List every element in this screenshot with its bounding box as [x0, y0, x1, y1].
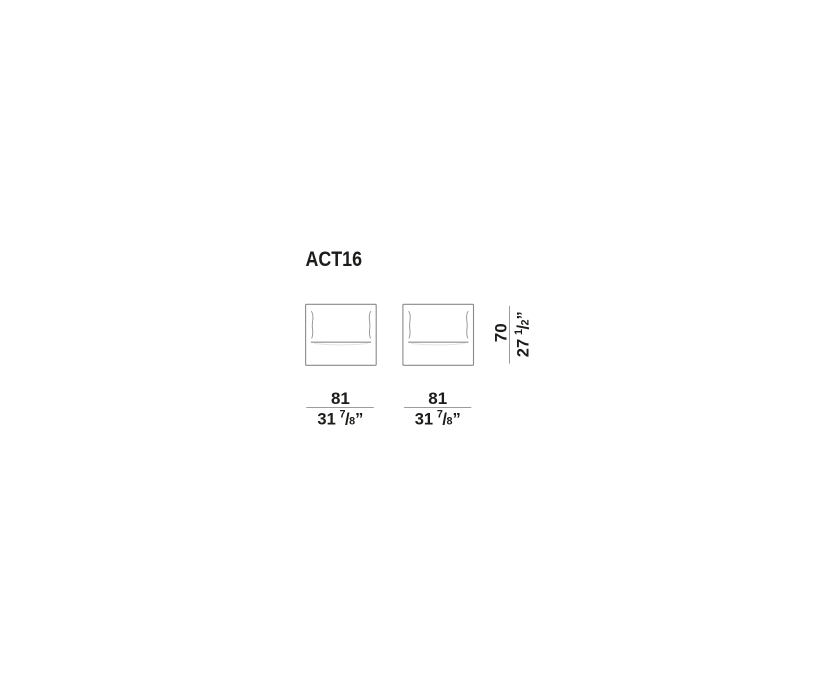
svg-text:31 7/8”: 31 7/8”	[415, 409, 461, 429]
svg-text:ACT16: ACT16	[306, 247, 363, 271]
svg-text:81: 81	[428, 389, 447, 408]
svg-text:81: 81	[331, 389, 350, 408]
svg-text:31 7/8”: 31 7/8”	[317, 409, 363, 429]
svg-text:70: 70	[492, 323, 511, 342]
svg-text:27 1/2”: 27 1/2”	[513, 311, 533, 357]
